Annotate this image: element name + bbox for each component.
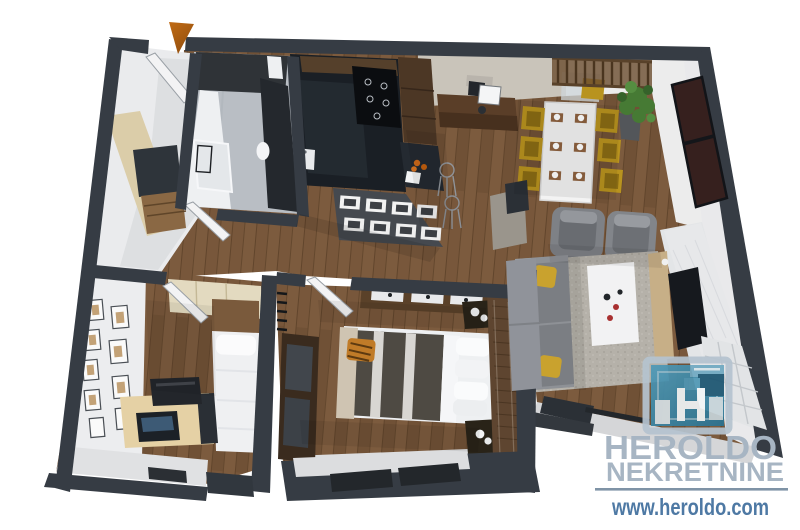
svg-text:NEKRETNINE: NEKRETNINE — [606, 457, 784, 487]
svg-text:www.heroldo.com: www.heroldo.com — [611, 494, 769, 520]
